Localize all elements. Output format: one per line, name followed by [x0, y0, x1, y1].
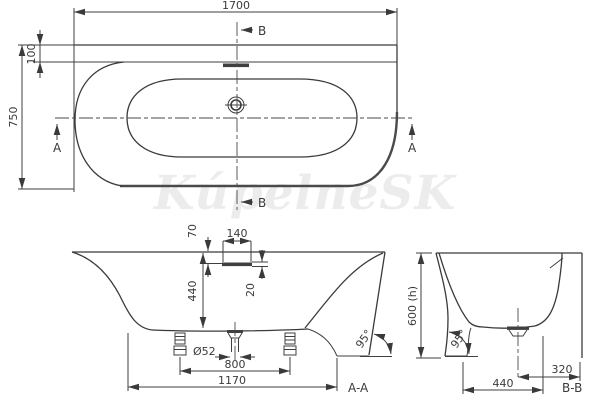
overflow-slot-top-icon	[223, 64, 249, 68]
foot-left-nut	[175, 333, 185, 344]
dim-20: 20	[244, 283, 257, 297]
aa-angle-arc	[374, 334, 391, 354]
section-b-marker-top: B	[258, 24, 266, 38]
aa-back-inner-wall	[305, 253, 383, 328]
dim-70: 70	[186, 224, 199, 238]
technical-drawing-bathtub: KúpelneSK 1700 750 100	[0, 0, 600, 406]
foot-right-threads	[285, 337, 295, 341]
dim-440-bottom: 440	[493, 377, 514, 390]
dim-440-depth: 440	[186, 281, 199, 302]
dim-100: 100	[25, 44, 38, 65]
section-aa-view: 140 70 440 20 Ø52 800 1170 95° A-A	[72, 224, 392, 395]
aa-overflow-ext-right	[252, 262, 268, 267]
bb-right-inner-wall	[535, 253, 562, 326]
aa-angle-95: 95°	[353, 327, 375, 350]
dim-600-height: 600 (h)	[406, 286, 419, 326]
dim-140: 140	[227, 227, 248, 240]
foot-left-base	[174, 346, 186, 355]
bb-left-outer-shell	[436, 253, 448, 356]
overflow-slot-section-icon	[222, 263, 252, 267]
bb-left-inner-wall	[439, 253, 483, 327]
section-a-marker-right: A	[408, 141, 417, 155]
watermark-text: KúpelneSK	[152, 166, 458, 221]
dim-320: 320	[552, 363, 573, 376]
bb-angle-95: 95°	[448, 327, 470, 350]
dim-600-extensions	[416, 253, 441, 358]
aa-left-profile	[72, 252, 152, 330]
dim-drain-diameter: Ø52	[193, 345, 216, 358]
foot-left-icon	[174, 333, 186, 355]
dim-1170: 1170	[218, 374, 246, 387]
section-bb-view: 600 (h) 440 320 95° B-B	[406, 253, 582, 395]
section-bb-label: B-B	[562, 381, 582, 395]
section-aa-label: A-A	[348, 381, 369, 395]
foot-right-icon	[284, 333, 296, 355]
foot-right-nut	[285, 333, 295, 344]
dim-1700: 1700	[222, 0, 250, 12]
tub-left-end-arc	[75, 62, 124, 186]
dim-800: 800	[225, 358, 246, 371]
foot-left-threads	[175, 337, 185, 341]
foot-right-base	[284, 346, 296, 355]
section-a-marker-left: A	[53, 141, 62, 155]
dim-750: 750	[7, 107, 20, 128]
section-b-marker-bottom: B	[258, 196, 266, 210]
drawing-canvas: KúpelneSK 1700 750 100	[0, 0, 600, 406]
aa-skirt-inner	[308, 329, 337, 356]
